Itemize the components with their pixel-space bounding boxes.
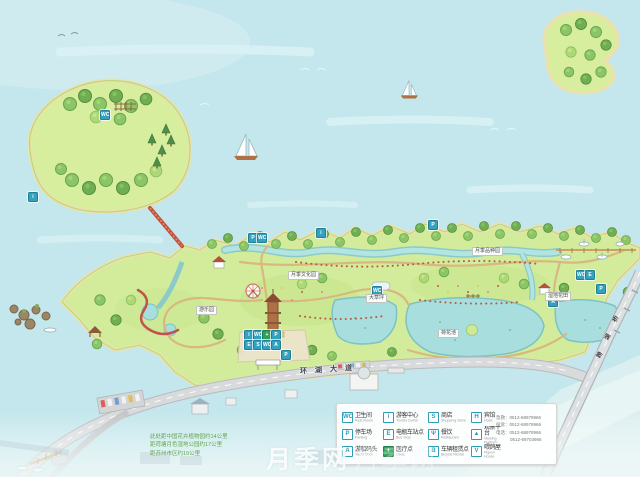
- map-icon-dock: A: [271, 340, 281, 350]
- area-label: 月季文化园: [288, 271, 319, 280]
- road-name-char: 湖: [315, 365, 322, 375]
- map-icon-parking: P: [596, 284, 606, 294]
- restaurant-icon: Ψ: [428, 429, 439, 440]
- watermark-ghost-text: 月季网: [354, 446, 438, 474]
- legend-item-restroom: WC 卫生间Rest Room: [342, 409, 382, 426]
- area-label: 湿地花田: [545, 292, 571, 301]
- watermark-underline: [408, 459, 500, 460]
- distance-notes: 此处距中国花卉植物园约14公里 距荷塘月色湿地公园约17公里 距苏州市区约19公…: [150, 433, 228, 458]
- northwest-island: [30, 81, 190, 212]
- distance-note-line: 距荷塘月色湿地公园约17公里: [150, 441, 228, 449]
- legend-label-en: Tourist Center: [396, 419, 418, 423]
- ferris-wheel: [246, 284, 260, 298]
- map-icon-restroom: WC: [257, 233, 267, 243]
- info-icon: i: [383, 412, 394, 423]
- legend-label-en: Pigeon House: [484, 451, 503, 458]
- area-label: 荷花池: [438, 329, 459, 338]
- contact-line: 投诉：0512-68978966: [496, 421, 553, 428]
- area-label: 大草坪: [366, 294, 387, 303]
- legend-label-en: Restaurant: [441, 436, 459, 440]
- shop-icon: S: [428, 412, 439, 423]
- watermark-text: 月季网: [266, 446, 350, 474]
- legend-label-en: Hotel: [484, 419, 494, 423]
- pigeon-icon: V: [471, 446, 482, 457]
- area-label: 月季品种园: [472, 247, 503, 256]
- map-icon-restroom: WC: [100, 110, 110, 120]
- map-icon-parking: P: [428, 220, 438, 230]
- legend-item-tourist-center: i 游客中心Tourist Center: [383, 409, 427, 426]
- legend-label-en: Bus Stop: [396, 436, 421, 440]
- map-icon-info: i: [316, 228, 326, 238]
- distance-note-line: 距苏州市区约19公里: [150, 450, 228, 458]
- contact-line: 电话：0512-68978966: [496, 429, 553, 436]
- illustrated-park-map: { "map": { "watermark": "月季网", "road_nam…: [0, 0, 640, 477]
- restroom-icon: WC: [342, 412, 353, 423]
- contact-line: 急救：0512-68978966: [496, 414, 553, 421]
- map-icon-parking: P: [281, 350, 291, 360]
- shuttle-icon: E: [383, 429, 394, 440]
- road-name-char: 环: [300, 366, 307, 376]
- hotel-icon: H: [471, 412, 482, 423]
- distance-note-line: 此处距中国花卉植物园约14公里: [150, 433, 228, 441]
- viewpoint-icon: ▲: [471, 429, 482, 440]
- legend-label-en: Parking: [355, 436, 370, 440]
- legend-item-pigeon-house: V 喂鸽屋Pigeon House: [471, 443, 505, 460]
- area-label: 游乐园: [196, 306, 217, 315]
- map-icon-shuttle: E: [585, 270, 595, 280]
- road-name-char: 大: [330, 364, 337, 374]
- legend-label-en: Shopping Store: [441, 419, 466, 423]
- watermark: 月季网月季网: [266, 440, 438, 476]
- legend-label-en: Bicycle Rental: [441, 453, 466, 457]
- legend-item-shop: S 商店Shopping Store: [428, 409, 470, 426]
- road-name-char: 道: [345, 363, 352, 373]
- contact-line: 0512-69703966: [496, 436, 553, 443]
- map-icon-parking: P: [271, 330, 281, 340]
- legend-label-en: Rest Room: [355, 419, 373, 423]
- parking-icon: P: [342, 429, 353, 440]
- contact-numbers: 急救：0512-68978966 投诉：0512-68978966 电话：051…: [496, 414, 553, 444]
- northeast-island: [544, 12, 618, 93]
- map-icon-info: i: [28, 192, 38, 202]
